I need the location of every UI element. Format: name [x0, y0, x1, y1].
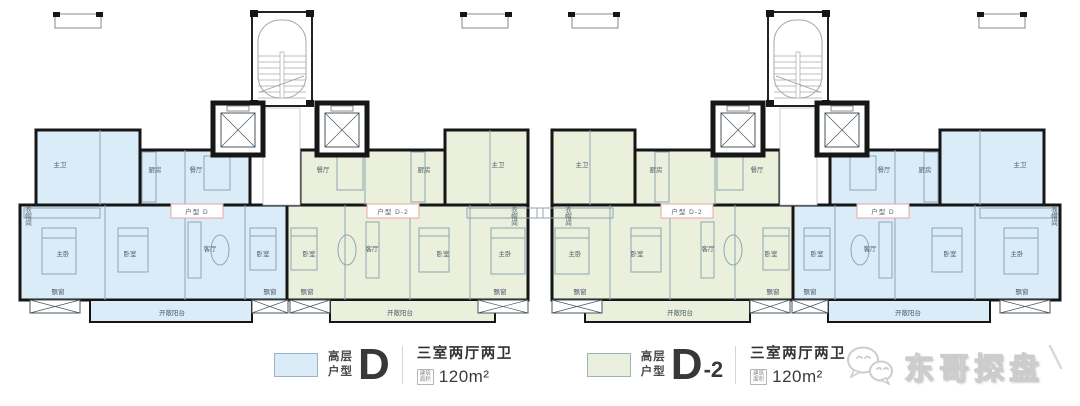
unit-d2-main-block: [287, 205, 528, 300]
room-label: 卧室: [257, 249, 271, 258]
plan-shape: [505, 12, 512, 17]
legend-category-line2: 户型: [641, 365, 666, 379]
unit-d-bath-block: [940, 130, 1044, 205]
legend-desc-d: 三室两厅两卫 建筑 面积 120m²: [417, 342, 513, 387]
room-label: 主卧: [57, 249, 71, 258]
room-label: 餐厅: [878, 165, 892, 174]
plan-shape: [96, 12, 103, 17]
plan-shape: [766, 10, 774, 17]
plan-shape: [766, 100, 774, 107]
legend-code-main: D: [358, 346, 390, 383]
room-label: 餐厅: [751, 165, 765, 174]
legend-category-line2: 户型: [328, 365, 353, 379]
room-label: 飘窗: [1016, 287, 1029, 296]
plan-shape: [977, 12, 984, 17]
room-label: 开敞阳台: [159, 308, 185, 317]
room-label: 飘窗: [52, 287, 65, 296]
plan-shape: [822, 10, 830, 17]
watermark-text: 东哥探盘: [904, 344, 1044, 388]
legend-area-value: 120m²: [772, 367, 823, 387]
legend-category-line1: 高层: [641, 350, 666, 364]
unit-d2-bath-block: [552, 130, 635, 205]
legend-category-line1: 高层: [328, 350, 353, 364]
unit-type-badge-label: 户型 D-2: [671, 207, 702, 216]
legend-swatch-d2: [587, 353, 631, 377]
legend-layout-text: 三室两厅两卫: [750, 342, 846, 363]
legend-area-badge: 建筑 面积: [417, 369, 434, 386]
legend-divider: [735, 346, 736, 384]
room-label: 卧室: [437, 249, 451, 258]
room-label: 飘窗: [574, 287, 587, 296]
unit-d-bath-block: [36, 130, 140, 205]
room-label: 客厅: [366, 244, 380, 253]
stair-stringer: [280, 52, 284, 98]
plan-shape: [613, 12, 620, 17]
watermark-flourish-icon: [1046, 344, 1064, 370]
room-label: 卧室: [631, 249, 645, 258]
legend-code-sub: -2: [704, 359, 724, 381]
unit-d2-main-block: [552, 205, 793, 300]
room-label: 客厅: [204, 244, 218, 253]
elevator-door: [831, 106, 853, 111]
stair-stringer: [796, 52, 800, 98]
room-label: 厨房: [149, 165, 162, 174]
legend-area-badge: 建筑 面积: [750, 369, 767, 386]
legend-desc-d2: 三室两厅两卫 建筑 面积 120m²: [750, 342, 846, 387]
room-label: 主卧: [1011, 249, 1025, 258]
room-label: 飘窗: [494, 287, 507, 296]
legend-category-d: 高层 户型: [328, 350, 353, 379]
legend: 高层 户型 D 三室两厅两卫 建筑 面积 120m²: [274, 342, 846, 387]
legend-code-d2: D -2: [671, 346, 723, 383]
room-label: 主卫: [54, 160, 68, 169]
roof-platform: [462, 14, 508, 28]
unit-d2-kitchen-block: [300, 150, 445, 205]
legend-item-d2: 高层 户型 D -2 三室两厅两卫 建筑 面积 120m²: [587, 342, 846, 387]
room-label: 厨房: [919, 165, 932, 174]
room-label: 开敞阳台: [895, 308, 921, 317]
legend-area-badge-line2: 面积: [420, 377, 431, 383]
plan-shape: [250, 10, 258, 17]
unit-d2-kitchen-block: [635, 150, 780, 205]
room-label: 飘窗: [804, 287, 817, 296]
elevator-door: [727, 106, 749, 111]
room-label: 卧室: [944, 249, 958, 258]
room-label: 餐厅: [190, 165, 204, 174]
room-label: 主卧: [499, 249, 513, 258]
legend-area-row: 建筑 面积 120m²: [750, 367, 846, 387]
room-label: 主卫: [492, 160, 506, 169]
core-hall: [263, 108, 300, 205]
unit-type-badge-label: 户型 D: [871, 207, 895, 216]
room-label: 餐厅: [317, 165, 331, 174]
roof-platform: [979, 14, 1025, 28]
floorplan-svg: 主卫厨房餐厅主卧卧室客厅卧室飘窗飘窗开敞阳台餐厅厨房主卫卧室客厅卧室主卧飘窗飘窗…: [0, 0, 1080, 332]
elevator-door: [227, 106, 249, 111]
room-label: 厨房: [418, 165, 431, 174]
legend-swatch-d: [274, 353, 318, 377]
unit-type-badge-label: 户型 D: [185, 207, 209, 216]
plan-shape: [1020, 12, 1027, 17]
room-label: 开敞阳台: [667, 308, 693, 317]
legend-category-d2: 高层 户型: [641, 350, 666, 379]
legend-code-d: D: [358, 346, 390, 383]
room-label: 卧室: [124, 249, 138, 258]
room-label: 主卧: [569, 249, 583, 258]
room-label: 主卫: [1014, 160, 1028, 169]
unit-d2-bath-block: [445, 130, 528, 205]
plan-shape: [460, 12, 467, 17]
plan-shape: [306, 10, 314, 17]
legend-area-row: 建筑 面积 120m²: [417, 367, 513, 387]
room-label: 主卫: [576, 160, 590, 169]
legend-area-value: 120m²: [439, 367, 490, 387]
unit-type-badge-label: 户型 D-2: [377, 207, 408, 216]
room-label: 飘窗: [767, 287, 780, 296]
room-label: 厨房: [650, 165, 663, 174]
floorplan-page: 主卫厨房餐厅主卧卧室客厅卧室飘窗飘窗开敞阳台餐厅厨房主卫卧室客厅卧室主卧飘窗飘窗…: [0, 0, 1080, 406]
roof-platform: [572, 14, 618, 28]
legend-item-d: 高层 户型 D 三室两厅两卫 建筑 面积 120m²: [274, 342, 513, 387]
core-hall: [780, 108, 817, 205]
room-label: 卧室: [811, 249, 825, 258]
plan-shape: [568, 12, 575, 17]
room-label: 卧室: [765, 249, 779, 258]
legend-layout-text: 三室两厅两卫: [417, 342, 513, 363]
watermark: 东哥探盘: [844, 344, 1064, 388]
room-label: 开敞阳台: [387, 308, 413, 317]
room-label: 客厅: [702, 244, 716, 253]
elevator-door: [331, 106, 353, 111]
wechat-icon: [844, 344, 896, 388]
legend-area-badge-line2: 面积: [753, 377, 764, 383]
room-label: 飘窗: [301, 287, 314, 296]
plan-shape: [53, 12, 60, 17]
plan-shape: [306, 100, 314, 107]
room-label: 飘窗: [264, 287, 277, 296]
legend-divider: [402, 346, 403, 384]
roof-platform: [55, 14, 101, 28]
room-label: 客厅: [864, 244, 878, 253]
room-label: 卧室: [303, 249, 317, 258]
legend-code-main: D: [671, 346, 703, 383]
